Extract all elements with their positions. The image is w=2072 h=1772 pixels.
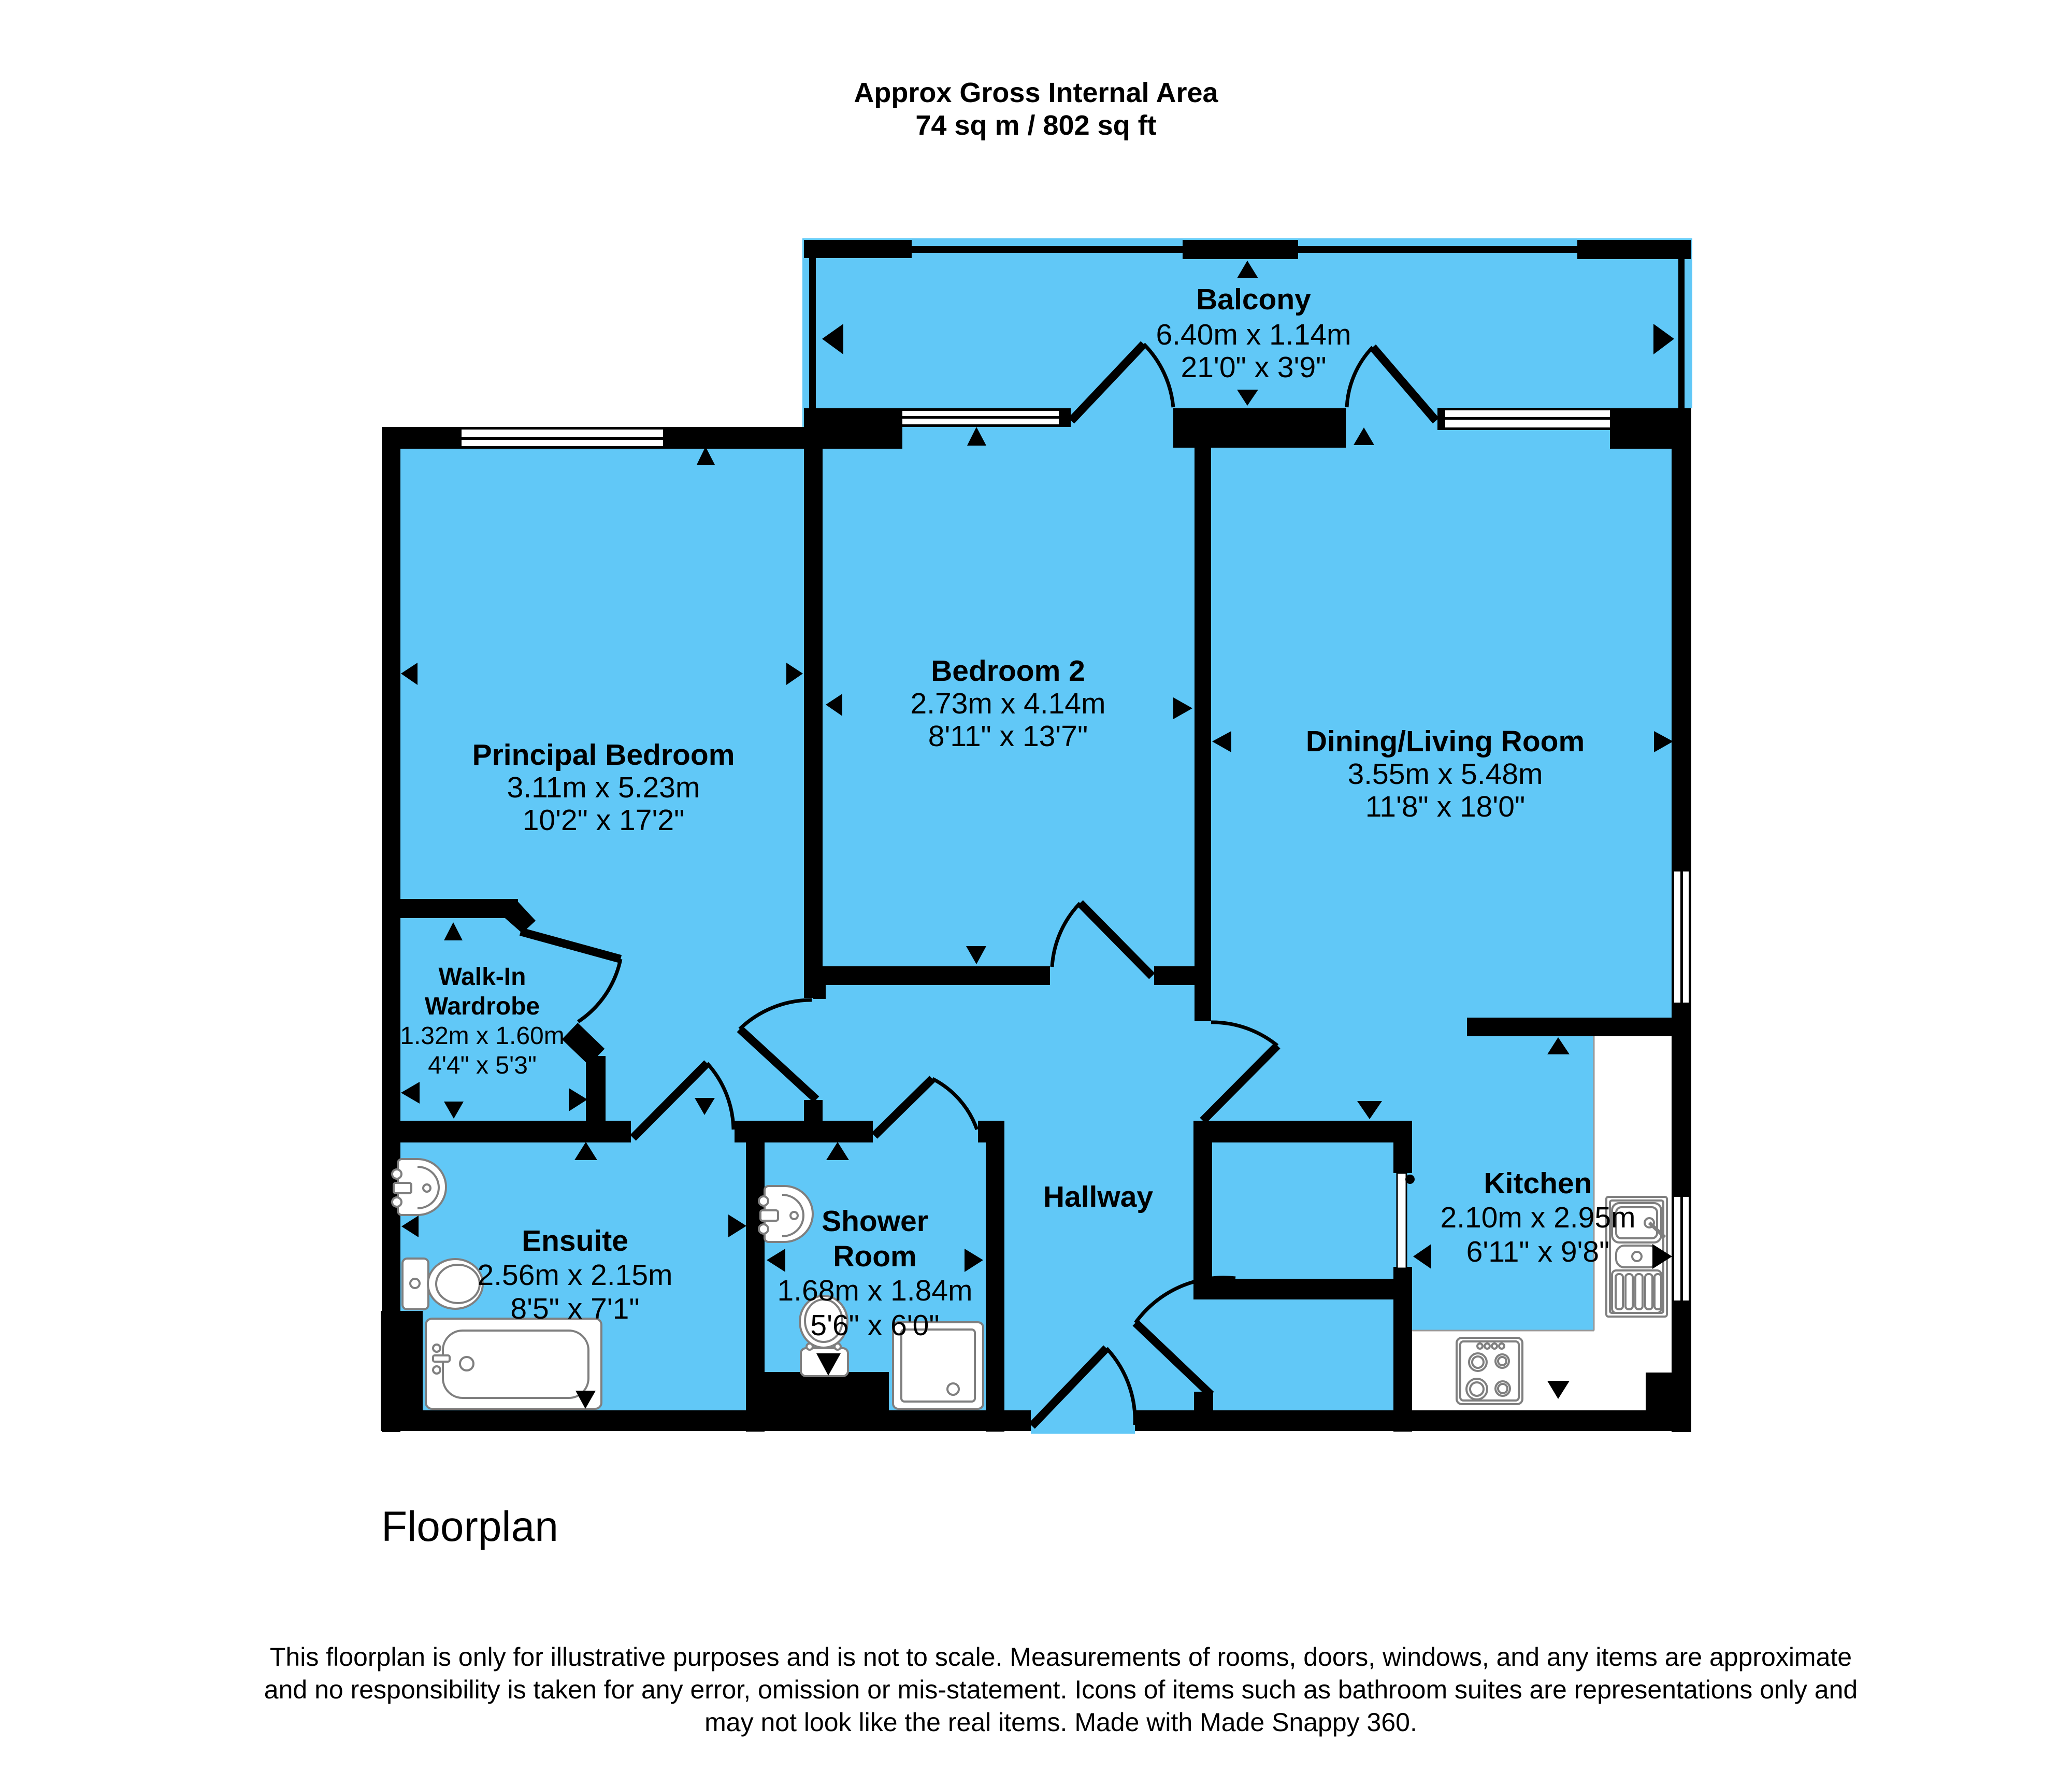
svg-text:Floorplan: Floorplan <box>381 1503 558 1550</box>
svg-text:1.32m x 1.60m: 1.32m x 1.60m <box>400 1022 564 1050</box>
svg-text:Room: Room <box>833 1240 916 1273</box>
svg-text:Principal Bedroom: Principal Bedroom <box>472 738 735 771</box>
svg-text:1.68m x 1.84m: 1.68m x 1.84m <box>777 1274 972 1307</box>
svg-text:2.56m x 2.15m: 2.56m x 2.15m <box>477 1259 672 1292</box>
svg-text:Ensuite: Ensuite <box>522 1224 628 1257</box>
svg-text:and no responsibility is taken: and no responsibility is taken for any e… <box>264 1675 1858 1704</box>
svg-text:2.73m x 4.14m: 2.73m x 4.14m <box>910 687 1105 720</box>
svg-text:Wardrobe: Wardrobe <box>425 993 540 1020</box>
svg-text:Balcony: Balcony <box>1196 283 1311 316</box>
svg-text:21'0" x 3'9": 21'0" x 3'9" <box>1181 351 1327 384</box>
svg-text:Bedroom 2: Bedroom 2 <box>931 654 1085 688</box>
svg-text:6'11" x 9'8": 6'11" x 9'8" <box>1466 1235 1610 1268</box>
svg-text:8'5" x 7'1": 8'5" x 7'1" <box>510 1292 639 1325</box>
svg-text:Dining/Living Room: Dining/Living Room <box>1306 725 1585 758</box>
svg-text:Kitchen: Kitchen <box>1484 1167 1592 1200</box>
svg-text:8'11" x 13'7": 8'11" x 13'7" <box>928 720 1088 753</box>
svg-text:may not look like the real ite: may not look like the real items. Made w… <box>704 1708 1417 1737</box>
svg-text:Approx Gross Internal Area: Approx Gross Internal Area <box>854 77 1218 108</box>
svg-text:74 sq m / 802 sq ft: 74 sq m / 802 sq ft <box>915 110 1156 141</box>
svg-text:11'8" x 18'0": 11'8" x 18'0" <box>1365 790 1525 823</box>
svg-text:3.55m x 5.48m: 3.55m x 5.48m <box>1347 758 1543 791</box>
svg-text:This floorplan is only for ill: This floorplan is only for illustrative … <box>270 1642 1852 1671</box>
svg-text:Shower: Shower <box>822 1205 928 1238</box>
svg-text:Hallway: Hallway <box>1043 1180 1154 1213</box>
svg-text:5'6" x 6'0": 5'6" x 6'0" <box>810 1309 939 1342</box>
svg-text:3.11m x 5.23m: 3.11m x 5.23m <box>507 771 700 804</box>
svg-text:2.10m x 2.95m: 2.10m x 2.95m <box>1440 1201 1635 1234</box>
svg-text:4'4" x 5'3": 4'4" x 5'3" <box>428 1052 537 1079</box>
svg-text:Walk-In: Walk-In <box>439 963 526 991</box>
svg-text:6.40m x 1.14m: 6.40m x 1.14m <box>1156 318 1351 351</box>
svg-text:10'2" x 17'2": 10'2" x 17'2" <box>523 804 685 837</box>
